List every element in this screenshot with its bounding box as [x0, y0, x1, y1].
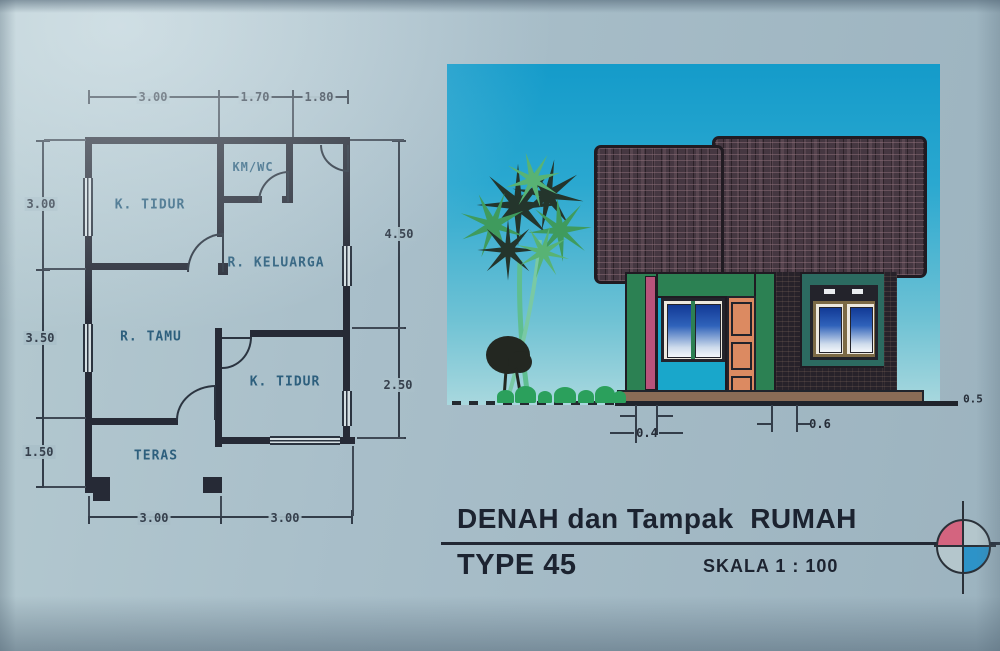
room-label-km-wc: KM/WC [232, 160, 273, 174]
dim-extension [44, 139, 86, 141]
bush [595, 386, 615, 403]
dim-tick [347, 90, 349, 104]
dim-extension [292, 98, 294, 137]
vent-block [824, 289, 835, 294]
window-pane [695, 304, 721, 358]
teras-column [85, 477, 110, 493]
door-arc [320, 145, 349, 172]
elev-dim-line [620, 415, 635, 417]
wall [217, 196, 262, 203]
drawing-type-label: TYPE 45 [457, 549, 577, 582]
dim-line [42, 140, 44, 488]
roof-porch [594, 145, 724, 284]
pink-accent-strip [645, 276, 656, 390]
dim-extension [350, 139, 404, 141]
title-divider-line [441, 542, 1000, 545]
window-symbol [83, 324, 93, 372]
porch-pillar-right [754, 272, 776, 392]
wall [250, 330, 348, 337]
front-door [727, 296, 756, 396]
window-symbol [270, 436, 340, 445]
scale-label: SKALA 1 : 100 [703, 556, 838, 577]
window-symbol [83, 178, 93, 236]
bush [554, 387, 576, 403]
bush [578, 390, 594, 403]
dim-extension [44, 486, 86, 488]
dim-label-top-3: 1.80 [303, 90, 336, 104]
elev-dim-label-0-5: 0.5 [963, 393, 983, 406]
elev-dim-label-0-4: 0.4 [636, 426, 658, 440]
bush [515, 386, 536, 403]
dim-label-top-2: 1.70 [239, 90, 272, 104]
dim-extension [220, 496, 222, 516]
wall [215, 328, 222, 447]
dim-label-left-2: 3.50 [24, 331, 57, 345]
elev-ext-line [771, 405, 773, 432]
vent-block [852, 289, 863, 294]
dim-label-right-1: 4.50 [383, 227, 416, 241]
dim-extension [357, 437, 404, 439]
dim-label-left-3: 1.50 [23, 445, 56, 459]
dim-extension [218, 98, 220, 137]
dim-label-right-2: 2.50 [382, 378, 415, 392]
teras-column-foot [93, 493, 110, 501]
scanned-drawing-paper: K. TIDUR KM/WC R. KELUARGA R. TAMU K. TI… [0, 0, 1000, 651]
ground-line [615, 401, 958, 406]
room-label-k-tidur-2: K. TIDUR [250, 375, 321, 390]
dim-extension [352, 327, 404, 329]
wall [217, 137, 224, 237]
bush [613, 391, 626, 403]
compass-crosshair-vertical [962, 501, 964, 594]
front-window [661, 298, 725, 362]
door-arc [187, 233, 224, 272]
wall [88, 263, 188, 270]
teras-column [203, 477, 222, 493]
roof-main [712, 136, 927, 278]
door-arc [258, 171, 289, 202]
dim-extension [44, 417, 86, 419]
window-symbol [342, 246, 352, 286]
dark-bush [508, 351, 532, 373]
elev-dim-line [659, 432, 683, 434]
elev-dim-label-0-6: 0.6 [809, 417, 831, 431]
window-pane [667, 304, 693, 358]
door-arc [222, 337, 252, 369]
window-pane [850, 307, 873, 353]
dim-label-bottom-1: 3.00 [138, 511, 171, 525]
elev-dim-line [757, 423, 773, 425]
door-panel [731, 302, 752, 336]
window-pane [819, 307, 842, 353]
drawing-title: DENAH dan Tampak RUMAH [457, 503, 857, 535]
window-symbol [342, 391, 352, 426]
dim-label-left-1: 3.00 [25, 197, 58, 211]
dim-label-bottom-2: 3.00 [269, 511, 302, 525]
brick-skirt [798, 368, 897, 392]
front-window-mullion [691, 301, 695, 359]
room-label-k-tidur-1: K. TIDUR [115, 198, 186, 213]
door-panel [731, 342, 752, 370]
door-arc [176, 385, 216, 420]
room-label-r-tamu: R. TAMU [120, 330, 182, 345]
wall [85, 418, 178, 425]
vent-strip [810, 285, 878, 298]
elev-ext-line [796, 405, 798, 432]
room-label-r-keluarga: R. KELUARGA [227, 256, 324, 271]
dim-extension [44, 268, 86, 270]
compass-crosshair-horizontal [934, 545, 996, 547]
bush [497, 390, 514, 403]
house-right-edge [884, 272, 897, 392]
bush [538, 391, 552, 403]
floor-plan: K. TIDUR KM/WC R. KELUARGA R. TAMU K. TI… [0, 0, 440, 560]
dim-tick [88, 90, 90, 104]
side-window [810, 298, 878, 360]
elev-dim-line [796, 423, 810, 425]
room-label-teras: TERAS [134, 449, 178, 464]
dim-label-top-1: 3.00 [137, 90, 170, 104]
elev-dim-line [610, 432, 634, 434]
dim-line [398, 140, 400, 439]
dim-extension [88, 496, 90, 516]
elev-dim-line [658, 415, 673, 417]
dim-extension [352, 446, 354, 516]
